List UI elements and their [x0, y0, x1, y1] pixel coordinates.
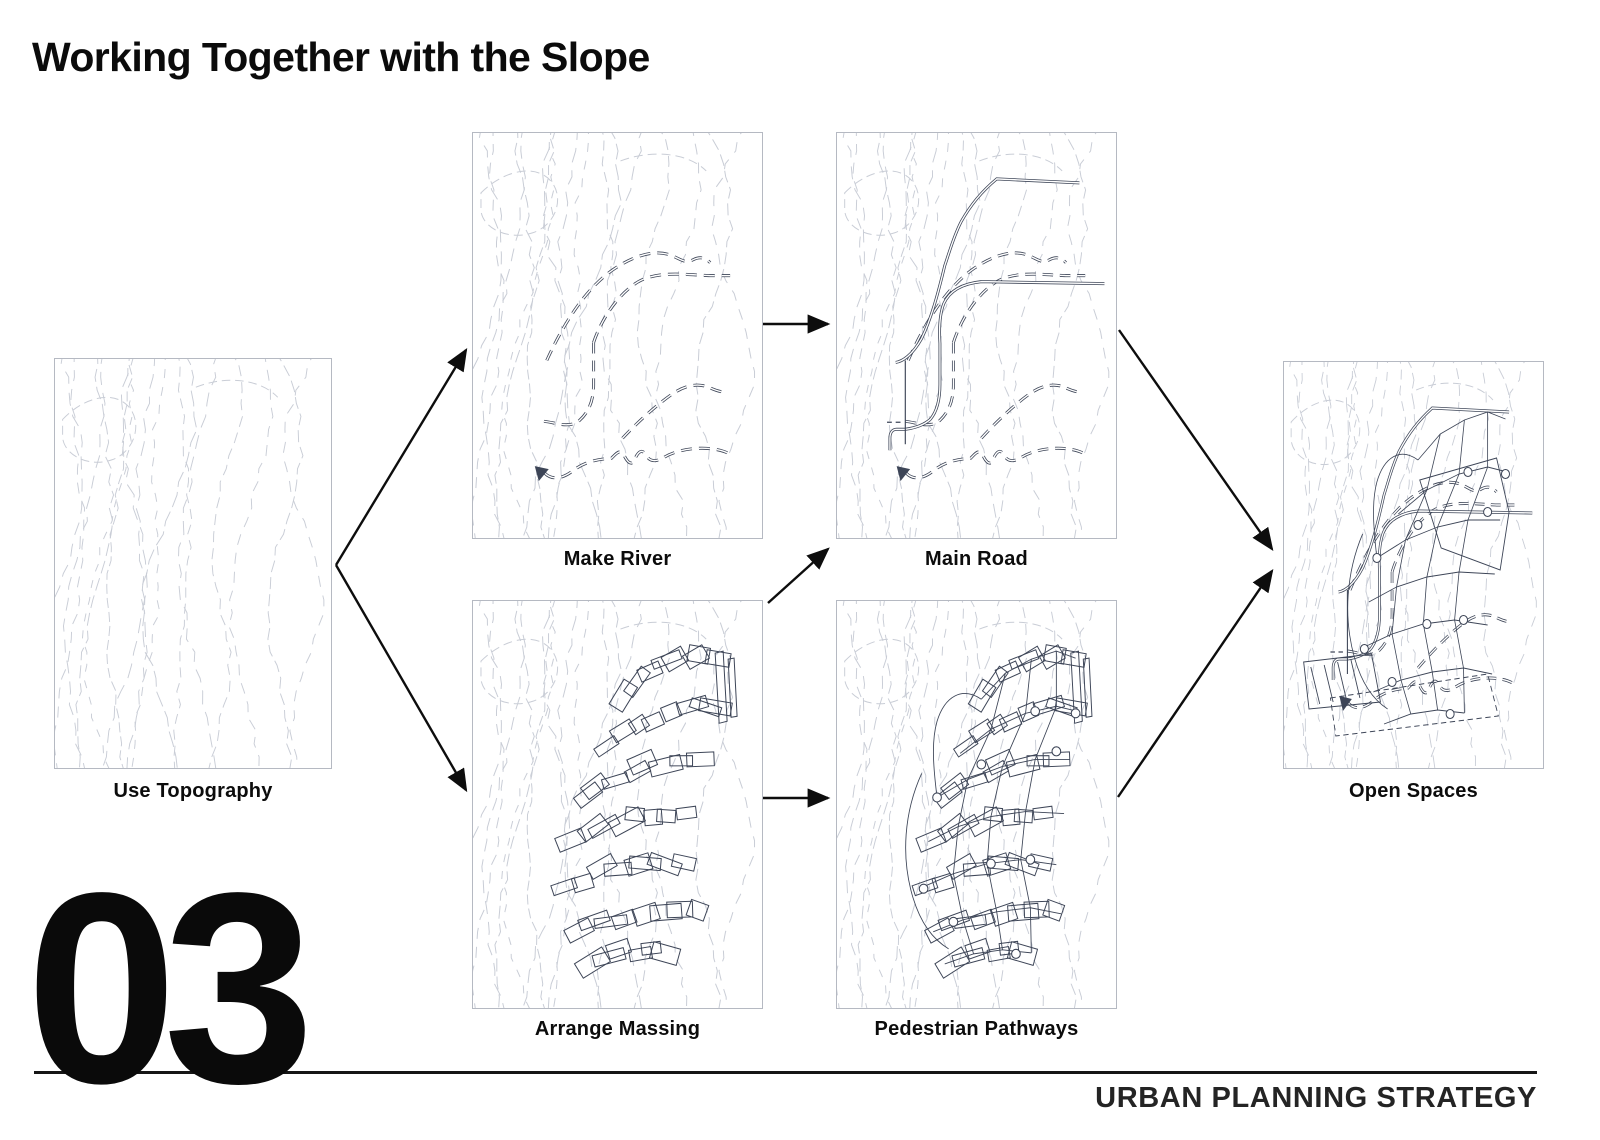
label-main-road: Main Road: [836, 548, 1117, 571]
panel-arrange-massing: [472, 600, 763, 1009]
label-open-spaces: Open Spaces: [1283, 780, 1544, 803]
arrange-massing-map: [473, 601, 762, 1008]
label-make-river: Make River: [472, 548, 763, 571]
make-river-map: [473, 133, 762, 538]
panel-make-river: [472, 132, 763, 539]
panel-use-topography: [54, 358, 332, 769]
slide: { "title": "Working Together with the Sl…: [0, 0, 1600, 1131]
page-number: 03: [26, 852, 301, 1124]
open-spaces-map: [1284, 362, 1543, 768]
pedestrian-pathways-map: [837, 601, 1116, 1008]
label-use-topography: Use Topography: [54, 780, 332, 803]
use-topography-map: [55, 359, 331, 768]
arrow-main-road-to-open-spaces: [1119, 330, 1272, 549]
footer-label: URBAN PLANNING STRATEGY: [1095, 1082, 1537, 1115]
panel-main-road: [836, 132, 1117, 539]
panel-open-spaces: [1283, 361, 1544, 769]
arrow-topography-to-make-river: [336, 350, 466, 565]
label-arrange-massing: Arrange Massing: [472, 1018, 763, 1041]
page-title: Working Together with the Slope: [32, 34, 650, 81]
main-road-map: [837, 133, 1116, 538]
arrow-arrange-massing-to-main-road: [768, 549, 828, 603]
arrow-topography-to-arrange-massing: [336, 565, 466, 790]
panel-pedestrian-pathways: [836, 600, 1117, 1009]
label-pedestrian-pathways: Pedestrian Pathways: [836, 1018, 1117, 1041]
arrow-pedestrian-pathways-to-open-spaces: [1118, 571, 1272, 797]
